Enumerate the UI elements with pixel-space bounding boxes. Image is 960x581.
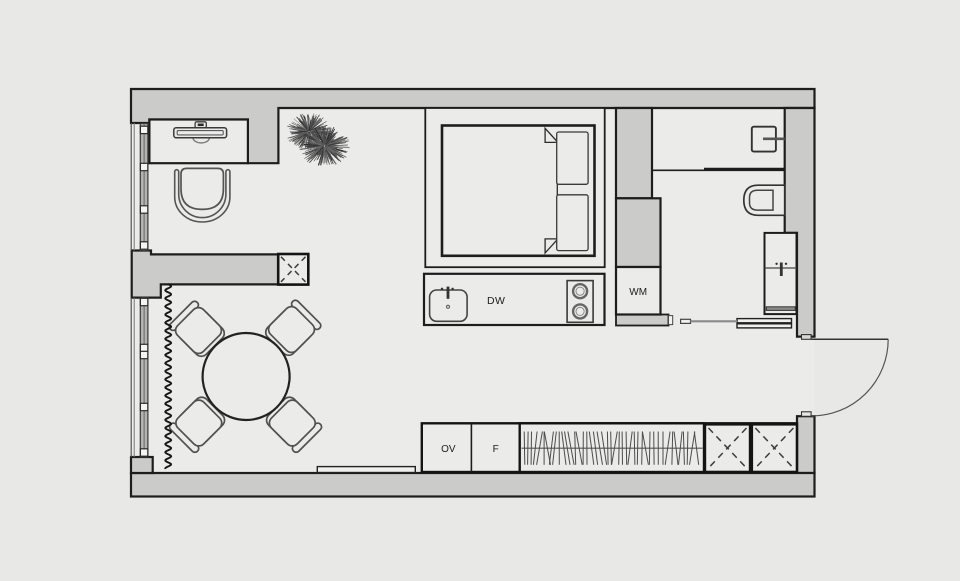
svg-text:WM: WM (629, 287, 647, 298)
svg-text:DW: DW (487, 295, 505, 307)
svg-text:OV: OV (441, 444, 456, 455)
svg-text:F: F (493, 444, 499, 455)
